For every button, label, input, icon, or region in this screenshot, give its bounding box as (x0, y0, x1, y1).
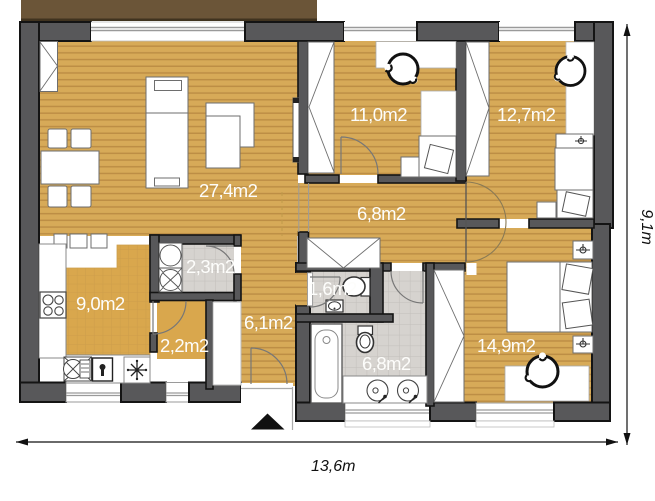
svg-text:2,3m2: 2,3m2 (186, 256, 235, 277)
svg-text:2,2m2: 2,2m2 (160, 335, 209, 356)
svg-text:14,9m2: 14,9m2 (477, 335, 536, 356)
svg-text:12,7m2: 12,7m2 (497, 104, 556, 125)
svg-text:6,1m2: 6,1m2 (244, 312, 293, 333)
svg-text:6,8m2: 6,8m2 (362, 353, 411, 374)
svg-text:11,0m2: 11,0m2 (350, 104, 407, 125)
svg-text:9,0m2: 9,0m2 (76, 293, 125, 314)
svg-text:6,8m2: 6,8m2 (357, 203, 406, 224)
svg-text:13,6m: 13,6m (311, 458, 355, 475)
svg-text:27,4m2: 27,4m2 (199, 180, 258, 201)
svg-text:9,1m: 9,1m (638, 209, 655, 245)
svg-text:1,6m2: 1,6m2 (308, 278, 357, 299)
